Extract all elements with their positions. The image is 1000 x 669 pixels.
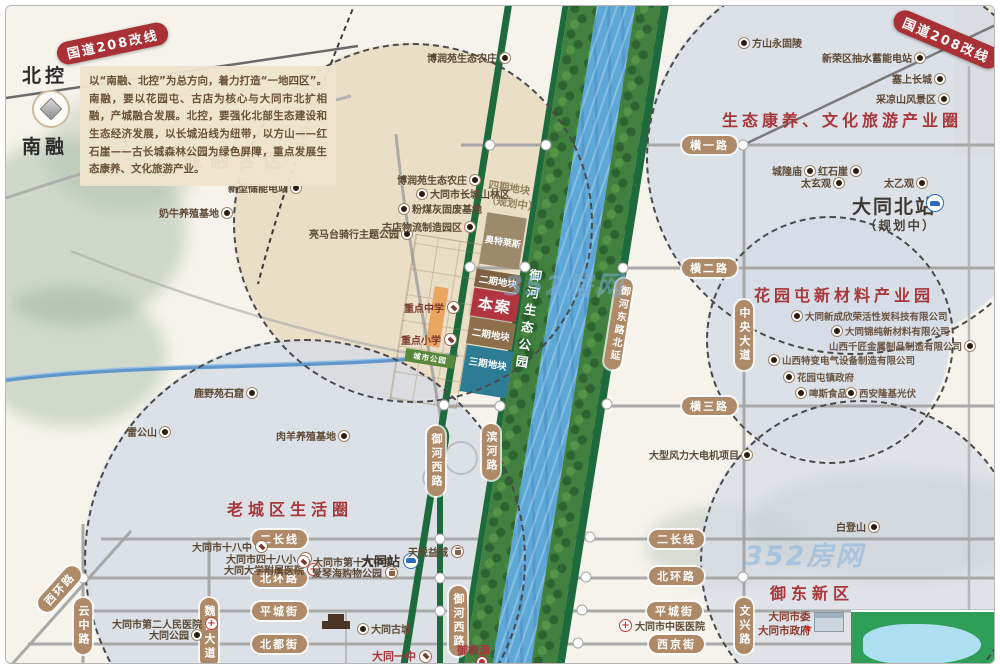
road-node	[573, 638, 584, 649]
road-node	[602, 399, 613, 410]
poi-dot-icon	[832, 326, 842, 336]
poi-label: 太玄观	[801, 175, 831, 190]
road-node	[738, 140, 749, 151]
poi-dot-icon	[470, 175, 480, 185]
poi-dot-icon	[247, 388, 257, 398]
planning-intro-text: 以“南融、北控”为总方向，着力打造“一地四区”。南融，要以花园屯、古店为核心与大…	[80, 66, 336, 186]
poi-label: 山西特变电气设备制造有限公司	[782, 353, 915, 367]
wenying-lake-park	[851, 610, 995, 664]
poi-label: 古店物流制造园区	[382, 219, 462, 234]
poi-dot-icon	[769, 355, 779, 365]
zone-title-oldtown: 老城区生活圈	[227, 496, 353, 520]
poi-dot-icon	[935, 74, 945, 84]
poi-dot-icon	[915, 53, 925, 63]
poi-label: 塞上长城	[892, 71, 932, 86]
phase3-block: 三期地块	[460, 345, 514, 399]
poi-dot-icon	[192, 630, 202, 640]
road-pill-binhe: 滨河路	[482, 424, 500, 480]
key-primary-school: 重点小学	[401, 332, 457, 347]
shopping-icon	[451, 545, 464, 558]
poi-dot-icon	[500, 53, 510, 63]
road-pill-beihuan-right: 北环路	[649, 567, 704, 585]
poi-label: 重点中学	[404, 300, 444, 315]
bag-glyph	[389, 570, 395, 576]
road-node	[577, 605, 588, 616]
road-node	[435, 534, 446, 545]
poi-qianjiang-metal-co: 山西千匠金属制品制造有限公司	[829, 339, 975, 353]
road-pill-wenxing: 文兴路	[735, 598, 753, 654]
road-pill-heng3: 横三路	[682, 397, 737, 415]
poi-dot-icon	[358, 624, 368, 634]
hospital-icon: +	[619, 619, 632, 632]
poi-label: 采凉山风景区	[876, 91, 936, 106]
poi-label: 花园屯镇政府	[797, 370, 854, 384]
road-pill-central-avenue: 中央大道	[735, 300, 753, 370]
poi-pisi-food: 啤斯食品	[796, 386, 847, 400]
poi-label: 大同市中医医院	[635, 618, 705, 633]
compass-south-label: 南融	[22, 132, 68, 159]
poi-label: 新荣区抽水蓄能电站	[822, 50, 912, 65]
bag-glyph	[455, 549, 461, 555]
poi-dot-icon	[917, 178, 927, 188]
yujinyuan-dot-icon	[477, 657, 487, 664]
road-node	[439, 400, 450, 411]
poi-label: 大型风力大电机项目	[649, 447, 739, 462]
school-icon	[297, 555, 310, 568]
poi-yujinyuan: 御锦源	[457, 642, 490, 658]
poi-datong-park: 大同公园	[149, 627, 202, 642]
poi-fangshan-tomb: 方山永固陵	[739, 35, 802, 50]
poi-dot-icon	[339, 431, 349, 441]
poi-dot-icon	[939, 94, 949, 104]
road-node	[485, 140, 496, 151]
location-map: 奥特莱斯 二期地块 本案 二期地块 三期地块 四期地块 （规划中） 城市公园 御…	[0, 0, 1000, 669]
poi-label: 天悦益城	[408, 544, 448, 559]
compass-needle	[40, 98, 63, 121]
poi-dot-icon	[796, 388, 806, 398]
lake-shape	[863, 624, 981, 664]
poi-label: 雷公山	[127, 424, 157, 439]
phase2-label: 二期地块	[471, 324, 511, 344]
school-icon	[419, 650, 432, 663]
poi-label: 啤斯食品	[809, 386, 847, 400]
poi-dot-icon	[784, 372, 794, 382]
poi-label: 大同大学附属医院	[224, 562, 304, 577]
poi-dot-icon	[965, 341, 975, 351]
poi-greatwall-forest: 大同市长城山林区	[417, 186, 510, 201]
poi-label: 城隍庙	[772, 163, 802, 178]
poi-label: 肉羊养殖基地	[276, 428, 336, 443]
poi-taixuan-temple: 太玄观	[801, 175, 844, 190]
poi-dot-icon	[851, 166, 861, 176]
poi-dot-icon	[742, 450, 752, 460]
poi-ancient-city: 大同古城	[358, 621, 411, 636]
ancient-city-gate-base	[322, 621, 350, 629]
school-glyph	[447, 336, 454, 343]
school-glyph	[300, 558, 307, 565]
road-pill-heng1: 横一路	[682, 136, 737, 154]
road-node	[738, 572, 749, 583]
road-pill-xijing: 西京街	[649, 635, 704, 653]
poi-label: 白登山	[836, 519, 866, 534]
school-glyph	[450, 304, 457, 311]
poi-label: 大同锦纯新材料有限公司	[845, 324, 950, 338]
shopping-icon	[385, 566, 398, 579]
poi-borunyuan-farm-top: 博润苑生态农庄	[427, 50, 510, 65]
poi-label: 西安隆基光伏	[859, 386, 916, 400]
poi-taiyi-temple: 太乙观	[884, 175, 927, 190]
poi-label: 御锦源	[457, 642, 490, 658]
compass-icon	[32, 90, 70, 128]
poi-label: 奶牛养殖基地	[159, 205, 219, 220]
poi-aegean-mall: 爱琴海购物公园	[312, 565, 398, 580]
road-node	[581, 572, 592, 583]
poi-borunyuan-farm: 博润苑生态农庄	[397, 172, 480, 187]
school-glyph	[258, 543, 265, 550]
road-pill-weidu: 魏都大道	[200, 598, 218, 664]
poi-dairy-base: 奶牛养殖基地	[159, 205, 232, 220]
poi-label: 重点小学	[401, 332, 441, 347]
poi-label: 方山永固陵	[752, 35, 802, 50]
poi-label: 大同古城	[371, 621, 411, 636]
poi-longi-solar: 西安隆基光伏	[846, 386, 916, 400]
poi-wind-power-project: 大型风力大电机项目	[649, 447, 752, 462]
poi-label: 山西千匠金属制品制造有限公司	[829, 339, 962, 353]
outlets-block: 奥特莱斯	[479, 212, 527, 270]
outlets-label: 奥特莱斯	[484, 232, 522, 250]
poi-dot-icon	[846, 388, 856, 398]
school-glyph	[422, 653, 429, 660]
school-icon	[444, 333, 457, 346]
poi-label: 博润苑生态农庄	[427, 50, 497, 65]
road-pill-yuhexi-upper: 御河西路	[427, 426, 445, 496]
poi-dot-icon	[399, 204, 409, 214]
phase2-north-label: 二期地块	[478, 271, 518, 291]
poi-label: 爱琴海购物公园	[312, 565, 382, 580]
poi-leigongshan: 雷公山	[127, 424, 170, 439]
poi-dot-icon	[805, 166, 815, 176]
poi-label: 博润苑生态农庄	[397, 172, 467, 187]
poi-luyeyuan-grottoes: 鹿野苑石窟	[194, 385, 257, 400]
poi-jinchun-materials-co: 大同锦纯新材料有限公司	[832, 324, 950, 338]
gov-star-icon: ★	[803, 622, 813, 635]
school-icon	[447, 301, 460, 314]
poi-gudian-logistics: 古店物流制造园区	[382, 219, 475, 234]
road-pill-heng2: 横二路	[682, 259, 737, 277]
poi-flyash-base: 粉煤灰固废基地	[399, 201, 482, 216]
train-station-icon	[926, 194, 944, 212]
poi-tcm-hospital: +大同市中医医院	[619, 618, 705, 633]
road-pill-erchang-right: 二长线	[649, 530, 704, 548]
datong-north-station-status: （规划中）	[864, 215, 937, 234]
road-node	[495, 401, 506, 412]
poi-dot-icon	[160, 427, 170, 437]
road-node	[618, 263, 629, 274]
poi-activated-carbon-co: 大同新成欣荣活性炭科技有限公司	[792, 309, 948, 323]
poi-dot-icon	[417, 189, 427, 199]
ancient-city-gate-roof	[328, 614, 344, 621]
train-glyph	[930, 201, 940, 206]
road-node	[435, 573, 446, 584]
road-node	[435, 606, 446, 617]
road-node	[541, 140, 552, 151]
government-building-graphic	[814, 612, 844, 632]
poi-huayuantun-gov: 花园屯镇政府	[784, 370, 854, 384]
poi-label: 粉煤灰固废基地	[412, 201, 482, 216]
road-pill-pingcheng-left: 平城街	[252, 602, 307, 620]
poi-dot-icon	[739, 38, 749, 48]
poi-label: 大同市长城山林区	[430, 186, 510, 201]
hospital-icon: +	[205, 617, 218, 630]
poi-dot-icon	[792, 311, 802, 321]
map-canvas: 奥特莱斯 二期地块 本案 二期地块 三期地块 四期地块 （规划中） 城市公园 御…	[5, 5, 995, 664]
key-middle-school: 重点中学	[404, 300, 460, 315]
poi-tebian-electric-co: 山西特变电气设备制造有限公司	[769, 353, 915, 367]
poi-cailiangshan: 采凉山风景区	[876, 91, 949, 106]
zone-title-yudong: 御东新区	[770, 580, 854, 604]
road-node	[465, 262, 476, 273]
poi-no1-middle-school: 大同一中	[372, 648, 432, 664]
poi-dot-icon	[834, 178, 844, 188]
poi-dot-icon	[465, 222, 475, 232]
poi-label: 太乙观	[884, 175, 914, 190]
poi-saishang-greatwall: 塞上长城	[892, 71, 945, 86]
poi-label: 鹿野苑石窟	[194, 385, 244, 400]
poi-label: 大同新成欣荣活性炭科技有限公司	[805, 309, 948, 323]
poi-dot-icon	[869, 522, 879, 532]
poi-pumped-storage: 新荣区抽水蓄能电站	[822, 50, 925, 65]
compass-north-label: 北控	[22, 61, 68, 88]
road-node	[585, 532, 596, 543]
phase3-label: 三期地块	[468, 353, 508, 373]
zone-title-eco: 生态康养、文化旅游产业圈	[722, 107, 962, 131]
poi-dot-icon	[222, 208, 232, 218]
poi-label: 大同公园	[149, 627, 189, 642]
road-pill-beidu: 北都街	[252, 635, 307, 653]
road-pill-yunzhong: 云中路	[74, 598, 92, 654]
poi-mutton-base: 肉羊养殖基地	[276, 428, 349, 443]
poi-label: 大同一中	[372, 648, 416, 664]
poi-tianyue-mall: 天悦益城	[408, 544, 464, 559]
project-site-label: 本案	[477, 292, 514, 318]
poi-baidengshan: 白登山	[836, 519, 879, 534]
zone-title-materials: 花园屯新材料产业园	[754, 282, 934, 306]
